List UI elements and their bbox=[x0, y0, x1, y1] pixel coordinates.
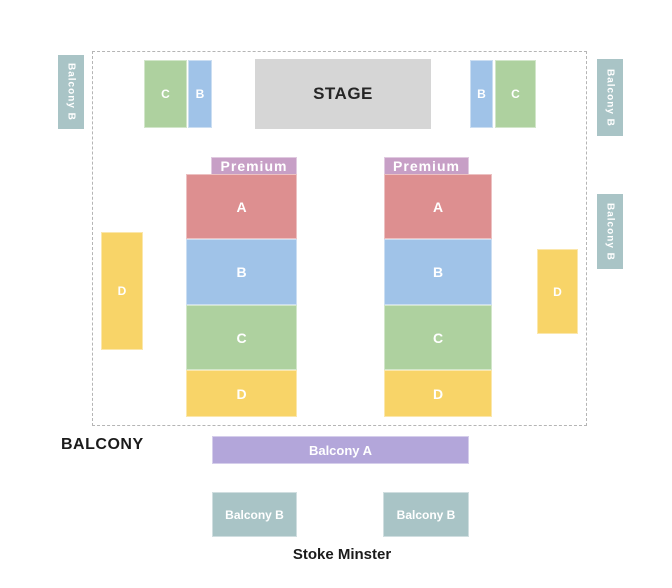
premium-label-right[interactable]: Premium bbox=[384, 157, 469, 175]
block-top-right-c[interactable]: C bbox=[495, 60, 536, 128]
balcony-b-block-left[interactable]: Balcony B bbox=[212, 492, 297, 537]
side-label-balcony-b-right-top[interactable]: Balcony B bbox=[597, 59, 623, 136]
block-top-left-b[interactable]: B bbox=[188, 60, 212, 128]
side-label-balcony-b-right-bottom[interactable]: Balcony B bbox=[597, 194, 623, 269]
venue-name: Stoke Minster bbox=[212, 546, 472, 563]
block-side-left-d[interactable]: D bbox=[101, 232, 143, 350]
premium-label-left[interactable]: Premium bbox=[211, 157, 297, 175]
balcony-b-block-right[interactable]: Balcony B bbox=[383, 492, 469, 537]
balcony-a-block[interactable]: Balcony A bbox=[212, 436, 469, 464]
block-top-left-c[interactable]: C bbox=[144, 60, 187, 128]
section-b-left[interactable]: B bbox=[186, 239, 297, 305]
seating-map: Balcony B C B STAGE B C Balcony B Balcon… bbox=[0, 0, 672, 588]
side-label-balcony-b-left[interactable]: Balcony B bbox=[58, 55, 84, 129]
section-d-right[interactable]: D bbox=[384, 370, 492, 417]
section-c-left[interactable]: C bbox=[186, 305, 297, 370]
section-d-left[interactable]: D bbox=[186, 370, 297, 417]
block-side-right-d[interactable]: D bbox=[537, 249, 578, 334]
section-a-left[interactable]: A bbox=[186, 174, 297, 239]
block-top-right-b[interactable]: B bbox=[470, 60, 493, 128]
balcony-heading: BALCONY bbox=[61, 436, 144, 454]
section-a-right[interactable]: A bbox=[384, 174, 492, 239]
section-c-right[interactable]: C bbox=[384, 305, 492, 370]
section-b-right[interactable]: B bbox=[384, 239, 492, 305]
stage: STAGE bbox=[255, 59, 431, 129]
